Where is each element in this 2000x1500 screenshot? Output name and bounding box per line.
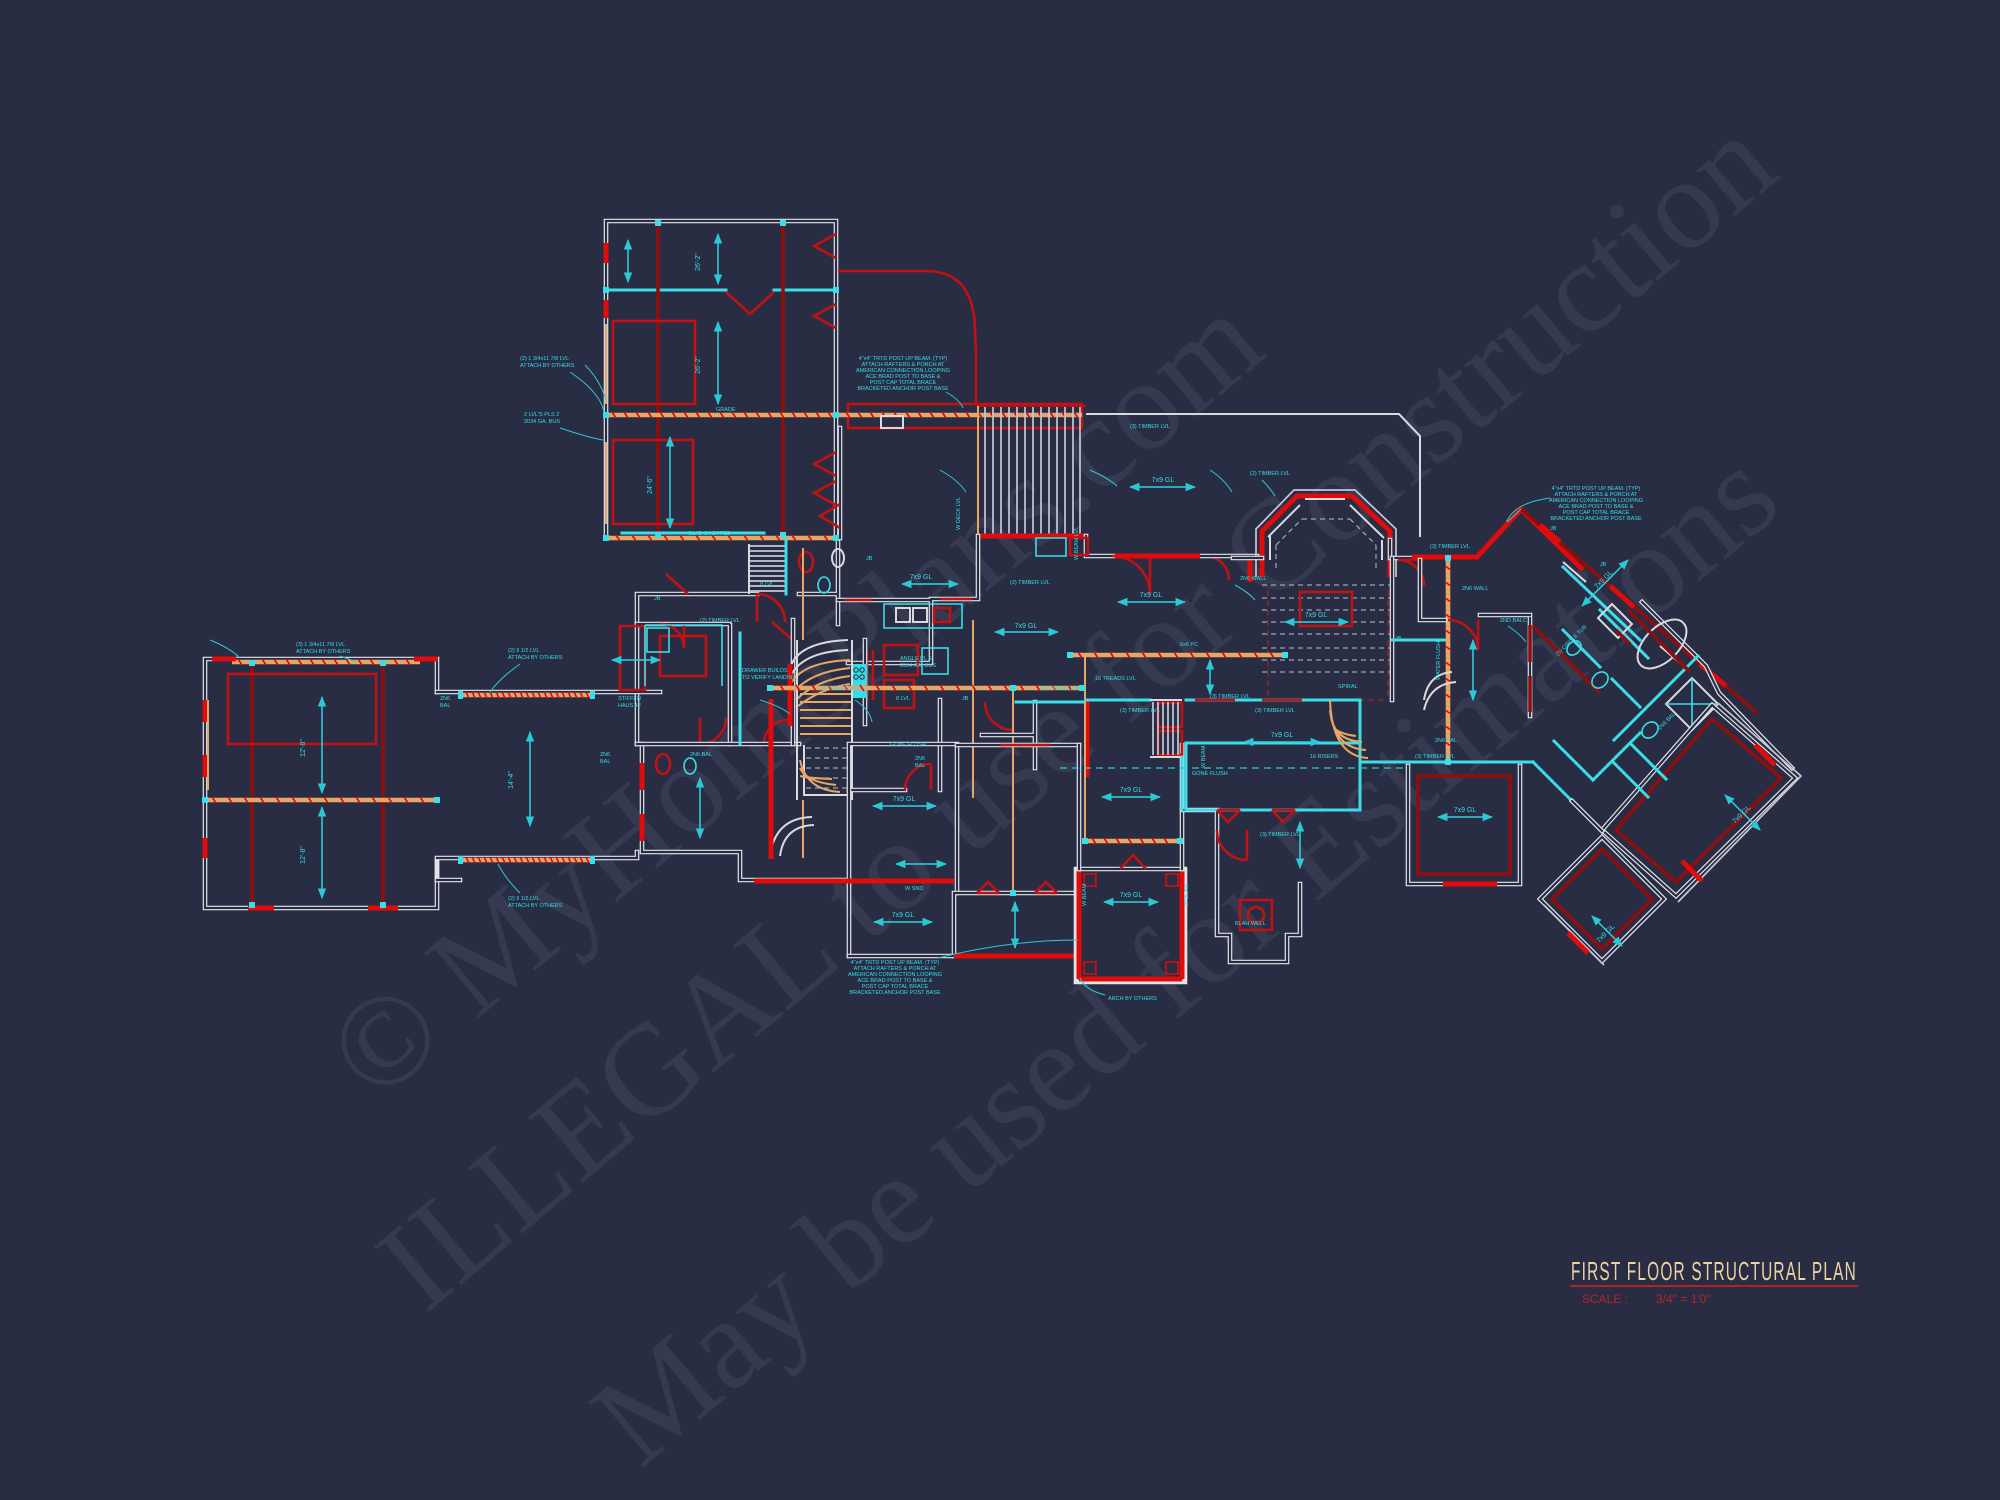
svg-text:DRAWER BUILDS: DRAWER BUILDS [742, 668, 788, 674]
svg-text:ATTACH BY OTHERS: ATTACH BY OTHERS [296, 649, 351, 655]
svg-text:BLAH WELL: BLAH WELL [1235, 921, 1266, 927]
svg-text:SPIRAL: SPIRAL [1338, 684, 1358, 690]
svg-text:16 TREADS LVL: 16 TREADS LVL [1095, 676, 1136, 682]
svg-text:JB: JB [1395, 636, 1402, 642]
svg-text:(3) 1 3/4x11 7/8 LVL: (3) 1 3/4x11 7/8 LVL [296, 642, 345, 648]
svg-text:W BEAM: W BEAM [1184, 883, 1190, 906]
svg-text:16 TREADS LVL: 16 TREADS LVL [820, 686, 861, 692]
svg-text:2N6 BAL: 2N6 BAL [1435, 738, 1457, 744]
svg-text:8 LVL: 8 LVL [896, 696, 910, 702]
svg-text:BRACKETED ANCHOR POST BASE: BRACKETED ANCHOR POST BASE [849, 990, 941, 996]
svg-text:JB: JB [654, 596, 661, 602]
svg-text:JB: JB [866, 556, 873, 562]
svg-text:(3) TIMBER LVL: (3) TIMBER LVL [1120, 708, 1160, 714]
svg-text:7x9 GL: 7x9 GL [1140, 592, 1163, 599]
svg-text:GRADE: GRADE [716, 407, 736, 413]
svg-text:7x9 GL: 7x9 GL [1454, 807, 1477, 814]
svg-text:24'-6": 24'-6" [647, 476, 654, 494]
svg-text:W SND: W SND [905, 886, 923, 892]
svg-text:W BEAM: W BEAM [1201, 745, 1207, 768]
svg-text:7x9 GL: 7x9 GL [1305, 612, 1328, 619]
svg-text:12'-8": 12'-8" [300, 846, 307, 864]
svg-text:HAUS 42: HAUS 42 [618, 703, 641, 709]
svg-text:(3) TIMBER LVL: (3) TIMBER LVL [1130, 424, 1170, 430]
svg-text:7x9 GL: 7x9 GL [1152, 477, 1175, 484]
svg-text:7x9 GL: 7x9 GL [1271, 732, 1294, 739]
svg-text:GONE FLUSH: GONE FLUSH [1192, 771, 1228, 777]
svg-text:2034 GA. BUS: 2034 GA. BUS [524, 419, 560, 425]
svg-text:JB: JB [1600, 562, 1607, 568]
svg-text:SCALE :: SCALE : [1582, 1292, 1628, 1306]
svg-text:ANGLE PL &: ANGLE PL & [900, 656, 932, 662]
svg-text:12'-8": 12'-8" [300, 739, 307, 757]
svg-text:BAL: BAL [440, 703, 450, 709]
svg-text:2N6: 2N6 [915, 756, 925, 762]
svg-text:7x9 GL: 7x9 GL [1120, 787, 1143, 794]
svg-text:BRACKETED ANCHOR POST BASE: BRACKETED ANCHOR POST BASE [857, 386, 949, 392]
svg-text:(3) TIMBER LVL: (3) TIMBER LVL [1260, 832, 1300, 838]
svg-text:ATTACH BY OTHERS: ATTACH BY OTHERS [508, 655, 563, 661]
svg-text:26'-2": 26'-2" [695, 356, 702, 374]
svg-text:(2) 9 1/2 LVL: (2) 9 1/2 LVL [508, 896, 539, 902]
svg-text:BAL: BAL [600, 759, 610, 765]
svg-text:3/4" = 1'0": 3/4" = 1'0" [1656, 1292, 1711, 1306]
svg-text:14'-4": 14'-4" [508, 771, 515, 789]
svg-text:2N6 WALL: 2N6 WALL [1240, 576, 1266, 582]
svg-text:(3) TIMBER LVL: (3) TIMBER LVL [1255, 708, 1295, 714]
svg-text:7x9 GL: 7x9 GL [1120, 892, 1143, 899]
svg-text:2 LVL'S PLS 2: 2 LVL'S PLS 2 [524, 412, 559, 418]
svg-text:7x9 GL: 7x9 GL [910, 574, 933, 581]
svg-text:7x9 GL: 7x9 GL [893, 796, 916, 803]
svg-text:7x9 GL: 7x9 GL [1015, 623, 1038, 630]
svg-text:(2) TIMBER LVL: (2) TIMBER LVL [700, 618, 740, 624]
svg-text:BAL: BAL [915, 763, 925, 769]
svg-text:(2) TIMBER LVL: (2) TIMBER LVL [1250, 471, 1290, 477]
svg-text:FIRST FLOOR STRUCTURAL PLAN: FIRST FLOOR STRUCTURAL PLAN [1571, 1256, 1857, 1286]
svg-text:SLAB CHOPPED: SLAB CHOPPED [688, 531, 731, 537]
svg-text:JB: JB [1550, 526, 1557, 532]
svg-text:2N6: 2N6 [600, 752, 610, 758]
svg-text:BRACKETED ANCHOR POST BASE: BRACKETED ANCHOR POST BASE [1550, 516, 1642, 522]
svg-text:W BEAM LVL: W BEAM LVL [1074, 527, 1080, 560]
svg-text:2N6: 2N6 [440, 696, 450, 702]
svg-text:ATTACH BY OTHERS: ATTACH BY OTHERS [508, 903, 563, 909]
svg-text:(3) TIMBER LVL: (3) TIMBER LVL [1040, 686, 1080, 692]
svg-text:7x9 GL: 7x9 GL [892, 912, 915, 919]
svg-text:2034 GA. BUS: 2034 GA. BUS [900, 663, 936, 669]
svg-text:GONE FLUSH: GONE FLUSH [890, 742, 926, 748]
svg-text:(2) 9 1/2 LVL: (2) 9 1/2 LVL [508, 648, 539, 654]
svg-text:(3) TIMBER LVL: (3) TIMBER LVL [1210, 694, 1250, 700]
svg-text:WATER FLUSH: WATER FLUSH [1436, 641, 1442, 680]
svg-text:ARCH BY OTHERS: ARCH BY OTHERS [1108, 996, 1157, 1002]
svg-text:JB: JB [962, 696, 969, 702]
svg-text:2N6 WALL: 2N6 WALL [1462, 586, 1488, 592]
svg-text:(2) TIMBER LVL: (2) TIMBER LVL [1010, 580, 1050, 586]
svg-text:2ND BALC: 2ND BALC [1500, 618, 1527, 624]
svg-text:(3) TIMBER LVL: (3) TIMBER LVL [1430, 544, 1470, 550]
svg-text:8 LVL: 8 LVL [760, 582, 774, 588]
svg-text:(2) 1 3/4x11 7/8 LVL: (2) 1 3/4x11 7/8 LVL [520, 356, 569, 362]
svg-text:2N6 BAL: 2N6 BAL [690, 752, 712, 758]
svg-text:W BEAM: W BEAM [1082, 883, 1088, 906]
svg-text:STIFFEN: STIFFEN [618, 696, 641, 702]
svg-text:6x6 PC: 6x6 PC [1180, 642, 1198, 648]
svg-text:ATTACH BY OTHERS: ATTACH BY OTHERS [520, 363, 575, 369]
svg-text:W DECK LVL: W DECK LVL [956, 497, 962, 530]
svg-text:TO VERIFY LANDING: TO VERIFY LANDING [742, 675, 797, 681]
svg-text:26'-2": 26'-2" [695, 253, 702, 271]
svg-text:16 RISERS: 16 RISERS [1310, 754, 1338, 760]
